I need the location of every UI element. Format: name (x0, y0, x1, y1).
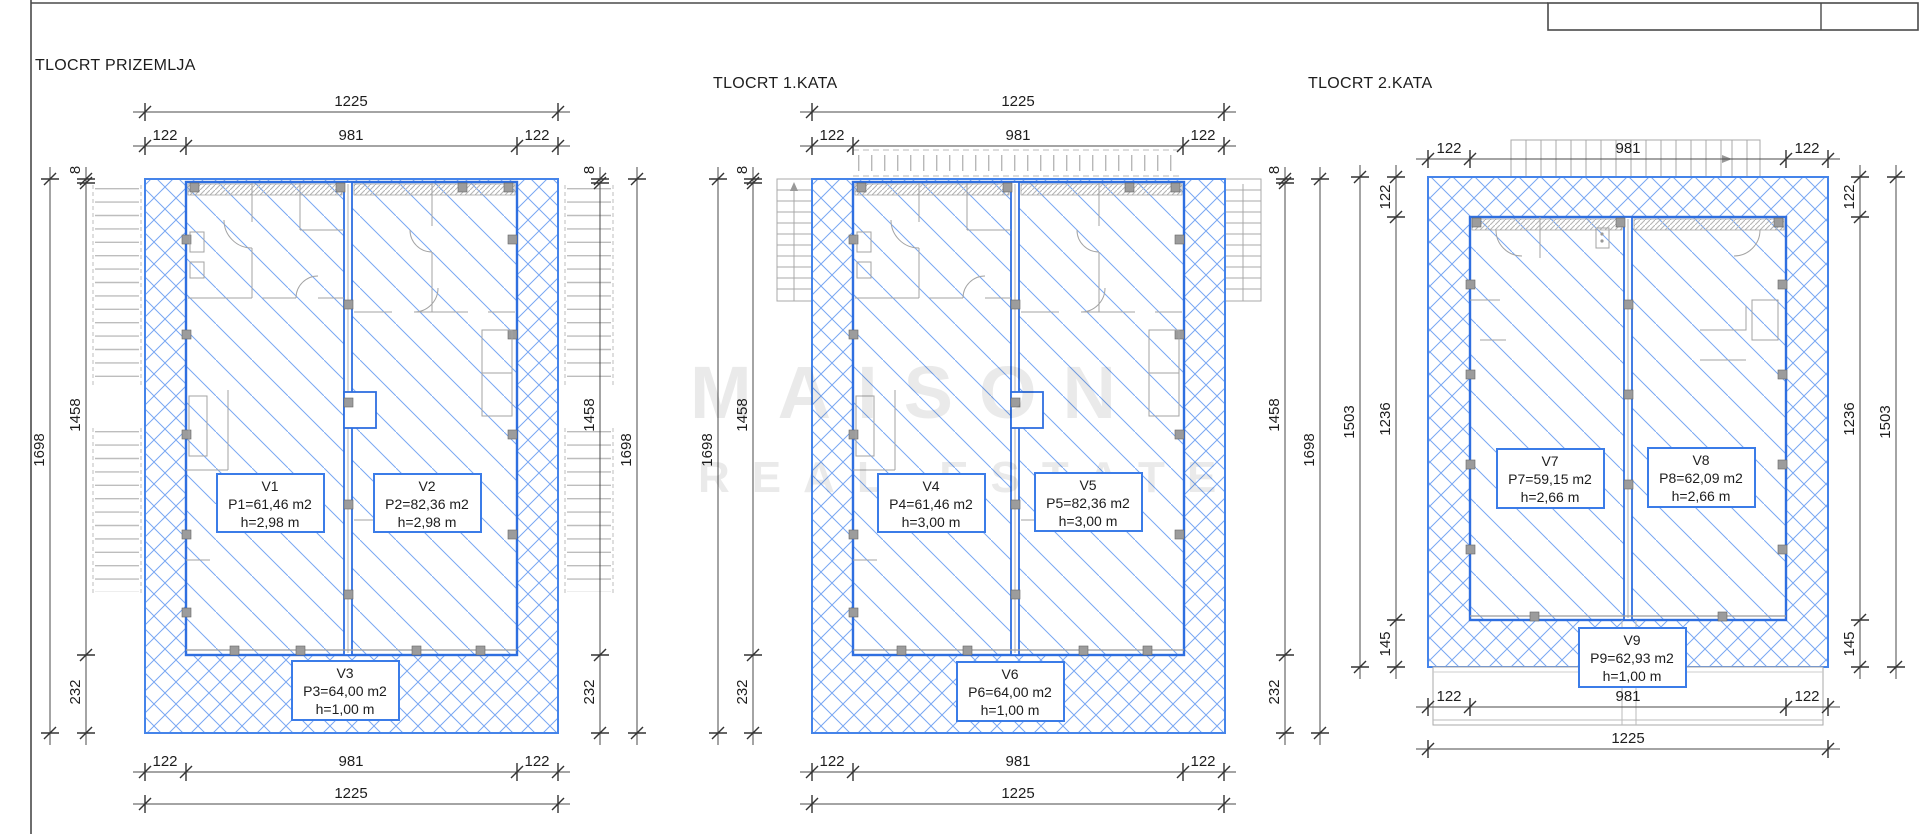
dim-label: 1503 (1877, 405, 1894, 438)
dim-label: 122 (1377, 184, 1394, 209)
unit-name: V3 (336, 665, 353, 681)
unit-label-box-v4: V4 P4=61,46 m2 h=3,00 m (878, 474, 985, 532)
dim-label: 981 (1615, 688, 1640, 705)
dim-label: 122 (1794, 140, 1819, 157)
dim-right: 8 1458 232 1698 (581, 166, 646, 745)
unit-height: h=1,00 m (981, 702, 1040, 718)
dim-label: 8 (67, 166, 84, 174)
unit-name: V9 (1623, 632, 1640, 648)
railing-dashed (853, 150, 1183, 176)
unit-area: P5=82,36 m2 (1046, 495, 1130, 511)
unit-label-box-v3: V3 P3=64,00 m2 h=1,00 m (292, 661, 399, 720)
formwork-dashed-left (93, 185, 141, 595)
unit-name: V2 (418, 478, 435, 494)
unit-name: V5 (1079, 477, 1096, 493)
dim-label: 1503 (1341, 405, 1358, 438)
unit-name: V6 (1001, 666, 1018, 682)
dim-bottom-total: 1225 (1416, 730, 1840, 758)
plan-title-second: TLOCRT 2.KATA (1308, 75, 1433, 92)
dim-label: 122 (819, 127, 844, 144)
dim-label: 1225 (334, 785, 367, 802)
dim-label: 232 (1266, 679, 1283, 704)
dim-top-total: 1225 (133, 93, 570, 121)
unit-height: h=1,00 m (1603, 668, 1662, 684)
dim-label: 981 (338, 127, 363, 144)
unit-label-box-v9: V9 P9=62,93 m2 h=1,00 m (1579, 628, 1686, 687)
dim-label: 145 (1377, 631, 1394, 656)
dim-label: 1698 (31, 433, 48, 466)
unit-height: h=2,98 m (241, 514, 300, 530)
dim-label: 1225 (1001, 785, 1034, 802)
dim-label: 981 (1615, 140, 1640, 157)
dim-label: 1225 (1611, 730, 1644, 747)
dim-label: 981 (1005, 753, 1030, 770)
dim-top-parts: 122 981 122 (800, 127, 1236, 155)
unit-area: P7=59,15 m2 (1508, 471, 1592, 487)
unit-area: P8=62,09 m2 (1659, 470, 1743, 486)
dim-label: 1236 (1841, 402, 1858, 435)
dim-label: 122 (819, 753, 844, 770)
dim-label: 1225 (334, 93, 367, 110)
unit-height: h=1,00 m (316, 701, 375, 717)
floor-plan-sheet: TLOCRT PRIZEMLJA (0, 0, 1920, 834)
dim-bottom-parts: 122 981 122 (800, 753, 1236, 781)
unit-area: P9=62,93 m2 (1590, 650, 1674, 666)
dim-right: 122 1236 145 1503 (1841, 165, 1905, 679)
dim-label: 1458 (1266, 398, 1283, 431)
dim-label: 122 (1436, 140, 1461, 157)
dim-left: 1503 122 1236 145 (1341, 165, 1405, 679)
unit-label-box-v6: V6 P6=64,00 m2 h=1,00 m (957, 662, 1064, 721)
dim-top-total: 1225 (800, 93, 1236, 121)
dim-bottom-total: 1225 (800, 785, 1236, 813)
dim-label: 122 (1794, 688, 1819, 705)
top-wall-band (188, 184, 342, 195)
dim-label: 122 (1190, 127, 1215, 144)
watermark-line1: MAISON (690, 351, 1142, 434)
dim-bottom-parts: 122 981 122 (133, 753, 570, 781)
unit-height: h=2,66 m (1672, 488, 1731, 504)
unit-height: h=2,66 m (1521, 489, 1580, 505)
dim-label: 8 (581, 166, 598, 174)
building-outline (1428, 177, 1828, 667)
stairs-right (1225, 179, 1261, 301)
dim-label: 122 (152, 753, 177, 770)
dim-label: 232 (734, 679, 751, 704)
dim-label: 122 (524, 127, 549, 144)
unit-name: V1 (261, 478, 278, 494)
dim-label: 232 (581, 679, 598, 704)
dim-label: 122 (152, 127, 177, 144)
plan-title-ground: TLOCRT PRIZEMLJA (35, 57, 196, 74)
dim-label: 122 (1436, 688, 1461, 705)
unit-area: P3=64,00 m2 (303, 683, 387, 699)
unit-name: V8 (1692, 452, 1709, 468)
dim-label: 122 (524, 753, 549, 770)
dim-label: 122 (1190, 753, 1215, 770)
unit-label-box-v8: V8 P8=62,09 m2 h=2,66 m (1648, 448, 1755, 507)
unit-name: V4 (922, 478, 939, 494)
dim-label: 122 (1841, 184, 1858, 209)
unit-name: V7 (1541, 453, 1558, 469)
dim-label: 981 (338, 753, 363, 770)
dim-bottom-total: 1225 (133, 785, 570, 813)
unit-area: P2=82,36 m2 (385, 496, 469, 512)
dim-label: 981 (1005, 127, 1030, 144)
dim-right: 8 1458 232 1698 (1266, 166, 1329, 745)
unit-height: h=2,98 m (398, 514, 457, 530)
plan-title-first: TLOCRT 1.KATA (713, 75, 838, 92)
dim-top-parts: 122 981 122 (133, 127, 570, 155)
dim-label: 145 (1841, 631, 1858, 656)
dim-label: 232 (67, 679, 84, 704)
dim-label: 1236 (1377, 402, 1394, 435)
formwork-dashed-right (565, 185, 613, 595)
dim-label: 8 (734, 166, 751, 174)
title-block-corner (1548, 3, 1918, 30)
unit-area: P4=61,46 m2 (889, 496, 973, 512)
building-outline (145, 179, 558, 733)
unit-area: P1=61,46 m2 (228, 496, 312, 512)
dim-label: 8 (1266, 166, 1283, 174)
unit-area: P6=64,00 m2 (968, 684, 1052, 700)
dim-label: 1458 (581, 398, 598, 431)
dim-label: 1698 (1301, 433, 1318, 466)
drawing-canvas: TLOCRT PRIZEMLJA (0, 0, 1920, 834)
unit-label-box-v1: V1 P1=61,46 m2 h=2,98 m (217, 474, 324, 532)
unit-label-box-v5: V5 P5=82,36 m2 h=3,00 m (1035, 473, 1142, 531)
unit-height: h=3,00 m (902, 514, 961, 530)
dim-label: 1458 (67, 398, 84, 431)
unit-label-box-v7: V7 P7=59,15 m2 h=2,66 m (1497, 449, 1604, 508)
stairs-left (777, 179, 812, 301)
dim-label: 1225 (1001, 93, 1034, 110)
unit-height: h=3,00 m (1059, 513, 1118, 529)
dim-left: 1698 8 1458 232 (31, 166, 95, 745)
unit-label-box-v2: V2 P2=82,36 m2 h=2,98 m (374, 474, 481, 532)
dim-label: 1698 (618, 433, 635, 466)
